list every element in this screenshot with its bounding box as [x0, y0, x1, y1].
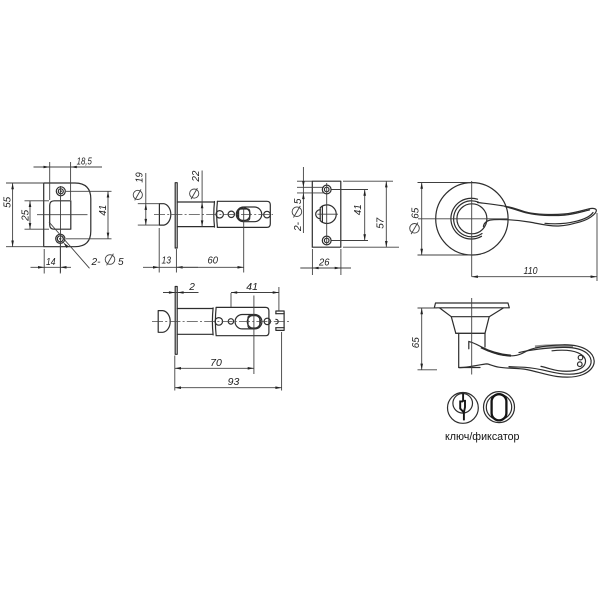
svg-text:93: 93 [228, 376, 240, 388]
svg-text:5: 5 [118, 256, 124, 268]
svg-text:5: 5 [292, 198, 304, 204]
svg-text:57: 57 [375, 217, 387, 229]
svg-text:55: 55 [2, 197, 14, 208]
svg-text:26: 26 [318, 256, 330, 268]
svg-text:14: 14 [46, 256, 56, 268]
svg-text:ключ/фиксатор: ключ/фиксатор [445, 431, 520, 443]
svg-text:41: 41 [97, 205, 109, 216]
svg-text:19: 19 [133, 172, 145, 183]
svg-text:70: 70 [210, 357, 222, 369]
svg-text:41: 41 [246, 281, 258, 293]
svg-text:2: 2 [188, 281, 195, 293]
svg-text:13: 13 [162, 255, 172, 267]
svg-text:2-: 2- [91, 256, 101, 268]
svg-text:25: 25 [20, 210, 32, 222]
svg-text:18,5: 18,5 [77, 156, 92, 168]
svg-text:22: 22 [190, 170, 202, 182]
svg-text:65: 65 [410, 208, 422, 219]
svg-text:60: 60 [208, 255, 219, 267]
svg-text:65: 65 [410, 337, 422, 348]
svg-text:41: 41 [352, 204, 364, 215]
svg-text:110: 110 [524, 265, 538, 277]
svg-text:2-: 2- [292, 222, 304, 232]
